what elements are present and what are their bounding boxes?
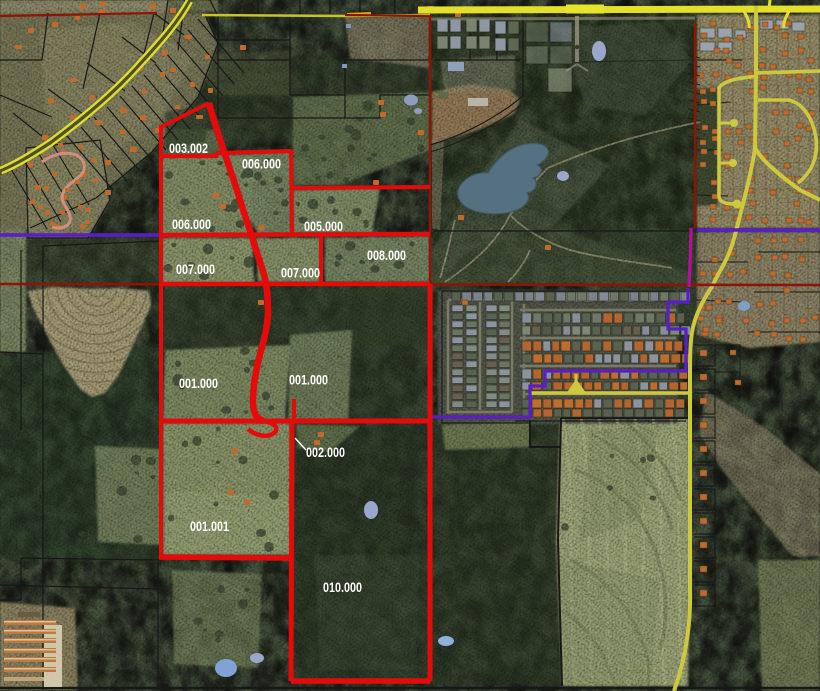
svg-text:008.000: 008.000 [367, 247, 406, 263]
svg-text:001.000: 001.000 [179, 375, 218, 391]
svg-text:001.000: 001.000 [289, 372, 328, 388]
svg-text:010.000: 010.000 [323, 579, 362, 595]
svg-text:006.000: 006.000 [242, 156, 281, 172]
svg-text:006.000: 006.000 [172, 216, 211, 232]
svg-text:002.000: 002.000 [306, 444, 345, 460]
svg-text:005.000: 005.000 [304, 218, 343, 234]
svg-text:007.000: 007.000 [176, 261, 215, 277]
svg-text:007.000: 007.000 [281, 265, 320, 281]
svg-text:001.001: 001.001 [190, 518, 229, 534]
svg-text:003.002: 003.002 [169, 140, 208, 156]
